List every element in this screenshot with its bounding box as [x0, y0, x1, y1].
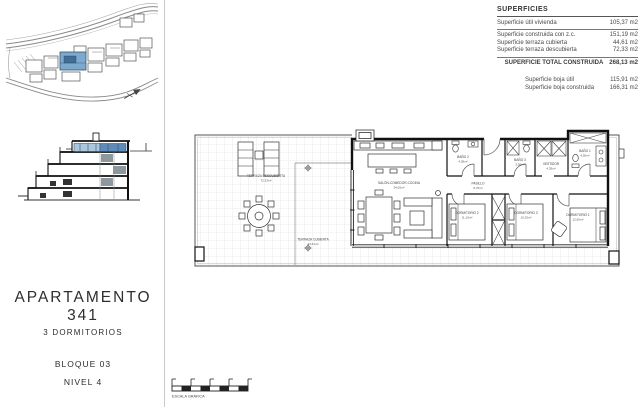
block-label: BLOQUE 03 — [0, 359, 166, 369]
table-rule — [497, 57, 638, 58]
room-area: 34,05m² — [393, 186, 404, 190]
room-label: DORMITORIO 3 — [514, 211, 538, 215]
room-area: 4,35m² — [546, 167, 555, 171]
room-label: BAÑO 3 — [514, 157, 526, 162]
room-label: DORMITORIO 2 — [455, 211, 479, 215]
row-label: Superficie terraza descubierta — [497, 47, 577, 55]
level-label: NIVEL 4 — [0, 377, 166, 387]
terrace-floor-south — [352, 247, 618, 266]
scale-bar-label: ESCALA GRÁFICA — [172, 395, 205, 399]
scale-bar: ESCALA GRÁFICA — [168, 376, 258, 402]
row-label: Superficie boja construida — [525, 85, 594, 93]
apartment-title: APARTAMENTO 341 — [0, 289, 166, 325]
bed-dormitorio-2 — [449, 204, 485, 240]
table-row: Superficie útil vivienda 105,37 m2 — [497, 20, 638, 28]
room-label: VESTIDOR — [543, 162, 560, 166]
table-row: Superficie construida con z.c. 151,19 m2 — [497, 32, 638, 40]
kitchen-counter — [354, 141, 442, 150]
row-value: 105,37 m2 — [610, 20, 638, 28]
row-value: 166,31 m2 — [610, 85, 638, 93]
room-label: TERRAZA CUBIERTA — [297, 238, 329, 242]
room-label: PASILLO — [471, 182, 485, 186]
room-label: TERRAZA DESCUBIERTA — [247, 174, 286, 178]
row-label: Superficie construida con z.c. — [497, 32, 575, 40]
room-area: 3,55m² — [515, 163, 524, 167]
section-gray-panels — [101, 154, 126, 186]
row-value: 115,91 m2 — [610, 77, 638, 85]
total-label: SUPERFICIE TOTAL CONSTRUIDA — [505, 60, 604, 68]
room-label: SALÓN-COMEDOR-COCINA — [378, 180, 421, 185]
floorplan-sheet: TERRAZA DESCUBIERTA 72,33m² TERRAZA CUBI… — [0, 0, 640, 407]
room-area: 72,33m² — [260, 179, 271, 183]
row-value: 44,61 m2 — [613, 40, 638, 48]
site-highlighted-block — [60, 52, 86, 70]
table-extra-rows: Superficie boja útil 115,91 m2 Superfici… — [497, 77, 638, 92]
table-row: Superficie boja construida 166,31 m2 — [525, 85, 638, 93]
superficies-title: SUPERFICIES — [497, 6, 638, 17]
row-label: Superficie terraza cubierta — [497, 40, 567, 48]
row-value: 72,33 m2 — [613, 47, 638, 55]
room-area: 4,50m² — [580, 154, 589, 158]
room-area: 44,61m² — [307, 242, 318, 246]
vent-symbol — [619, 149, 624, 158]
site-plan — [4, 2, 158, 114]
section-highlighted-floor — [74, 144, 126, 152]
row-label: Superficie boja útil — [525, 77, 574, 85]
room-label: DORMITORIO 1 — [566, 213, 590, 217]
section-building — [18, 133, 152, 200]
site-road-bottom — [6, 78, 158, 101]
table-total-row: SUPERFICIE TOTAL CONSTRUIDA 268,13 m2 — [497, 60, 638, 68]
north-arrow-icon — [123, 86, 142, 101]
room-area: 10,25m² — [520, 216, 531, 220]
floor-plan: TERRAZA DESCUBIERTA 72,33m² TERRAZA CUBI… — [172, 118, 640, 278]
table-rule — [497, 29, 638, 30]
table-row: Superficie terraza descubierta 72,33 m2 — [497, 47, 638, 55]
column — [609, 251, 619, 264]
room-label: BAÑO 2 — [457, 154, 469, 159]
row-label: Superficie útil vivienda — [497, 20, 557, 28]
room-area: 11,10m² — [462, 216, 473, 220]
table-row: Superficie terraza cubierta 44,61 m2 — [497, 40, 638, 48]
total-value: 268,13 m2 — [609, 60, 638, 68]
room-area: 8,70m² — [473, 186, 482, 190]
table-row: Superficie boja útil 115,91 m2 — [525, 77, 638, 85]
title-block: APARTAMENTO 341 3 DORMITORIOS BLOQUE 03 … — [0, 289, 166, 387]
site-buildings — [26, 14, 152, 82]
section-elevation — [18, 116, 168, 238]
room-area: 12,60m² — [572, 218, 583, 222]
bedrooms-subtitle: 3 DORMITORIOS — [0, 328, 166, 337]
terrace-round-table — [239, 196, 279, 236]
rooftop-unit — [356, 130, 374, 141]
column — [195, 247, 204, 261]
room-area: 4,05m² — [458, 160, 467, 164]
bed-dormitorio-3 — [507, 204, 543, 240]
superficies-table: SUPERFICIES Superficie útil vivienda 105… — [497, 6, 638, 92]
row-value: 151,19 m2 — [610, 32, 638, 40]
room-label: BAÑO 1 — [579, 148, 591, 153]
